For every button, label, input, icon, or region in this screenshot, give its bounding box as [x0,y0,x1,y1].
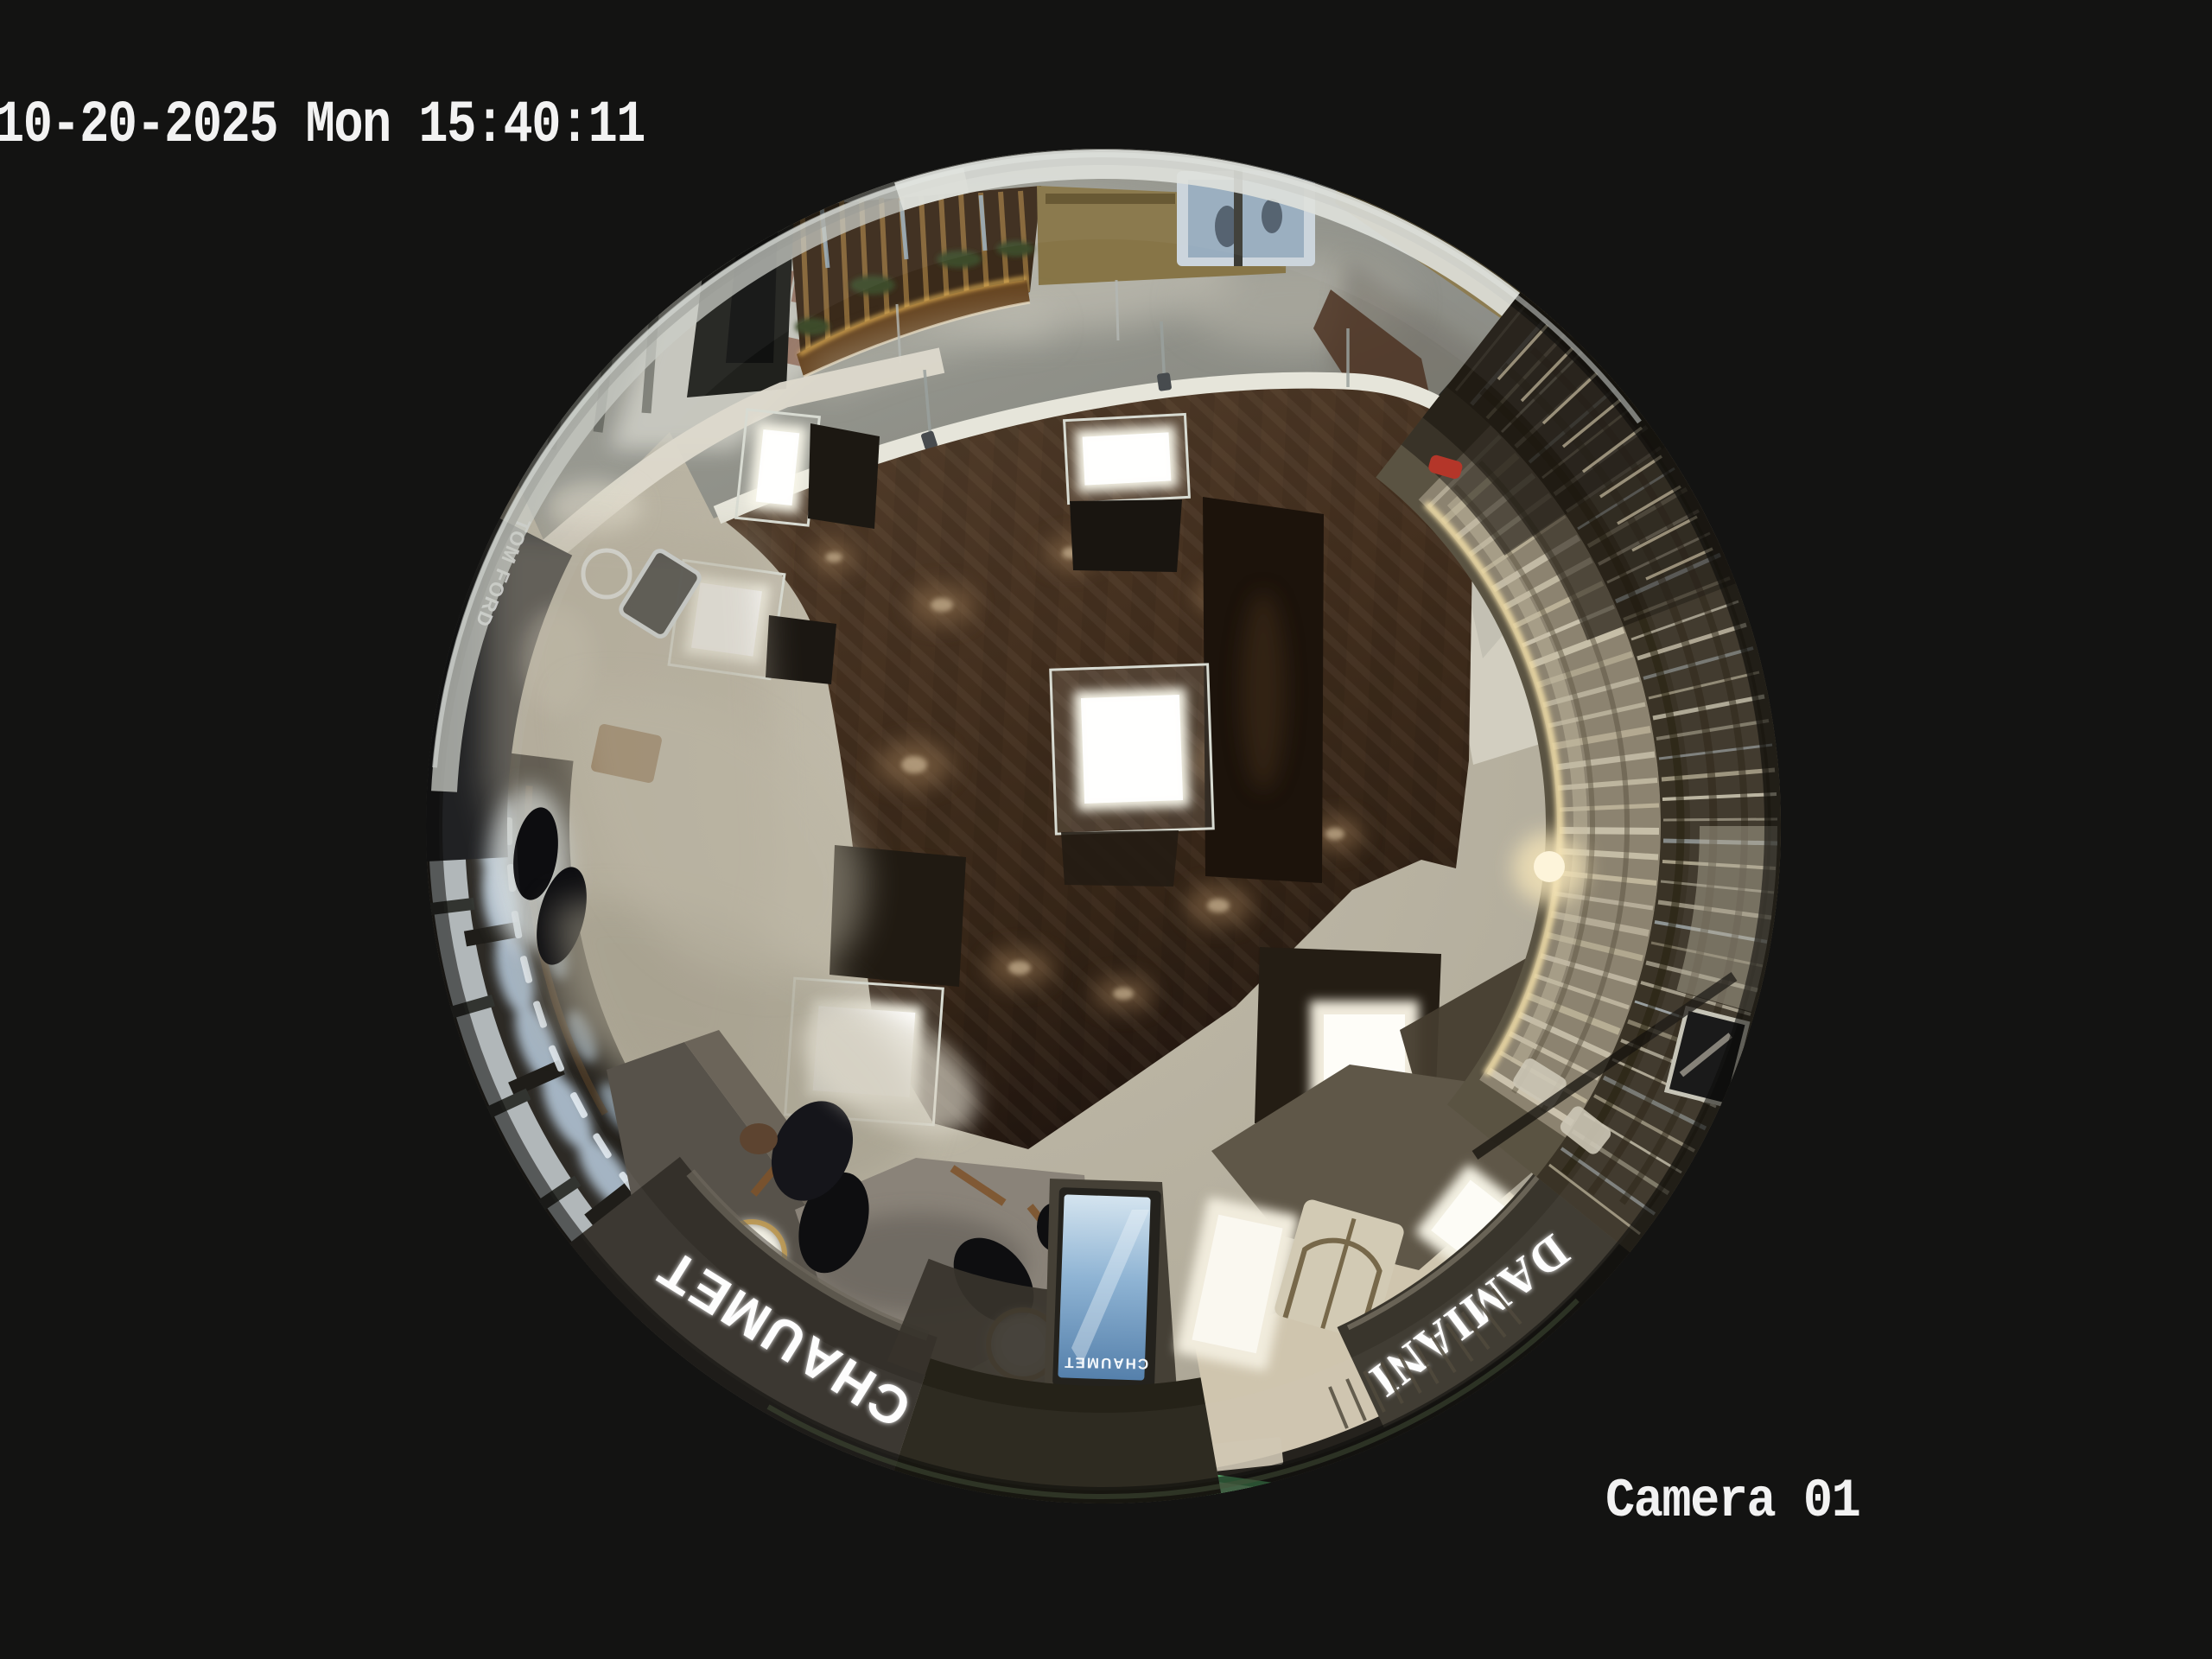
svg-text:Camera 01: Camera 01 [1605,1471,1859,1532]
svg-text:10-20-2025 Mon 15:40:11: 10-20-2025 Mon 15:40:11 [0,92,645,159]
svg-text:CHAUMET: CHAUMET [1063,1354,1148,1372]
